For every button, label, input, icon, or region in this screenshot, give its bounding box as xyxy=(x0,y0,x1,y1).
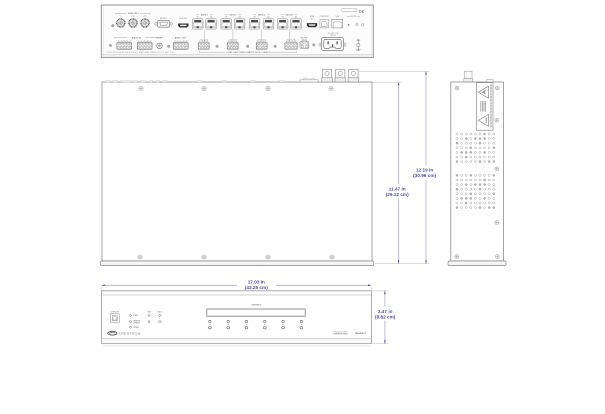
svg-text:HDMI IN 1: HDMI IN 1 xyxy=(179,18,187,20)
svg-text:OUT: OUT xyxy=(310,18,314,20)
svg-text:RS-232 G: RS-232 G xyxy=(160,18,168,20)
svg-text:CRESTRON: CRESTRON xyxy=(119,332,141,336)
svg-text:COMPUTER: COMPUTER xyxy=(320,16,330,18)
svg-text:RESET: RESET xyxy=(134,327,140,329)
svg-text:17.03 in: 17.03 in xyxy=(248,280,265,285)
svg-text:12.19 in: 12.19 in xyxy=(416,168,433,173)
svg-text:(8.82 cm): (8.82 cm) xyxy=(375,315,396,320)
svg-text:DM-MD8X1: DM-MD8X1 xyxy=(355,333,367,335)
svg-text:DM OUT: DM OUT xyxy=(286,14,294,16)
svg-text:DM IN 1: DM IN 1 xyxy=(201,14,208,16)
svg-text:AUDIO IN: AUDIO IN xyxy=(132,36,142,39)
svg-text:(29.12 cm): (29.12 cm) xyxy=(386,192,409,197)
svg-text:50/60 Hz: 50/60 Hz xyxy=(330,35,336,37)
svg-text:ERROR: ERROR xyxy=(134,322,141,324)
svg-text:DM IN 3: DM IN 3 xyxy=(258,14,265,16)
svg-text:(43.25 cm): (43.25 cm) xyxy=(245,285,268,290)
svg-text:11.47 in: 11.47 in xyxy=(389,187,406,192)
svg-text:SPDIF IN: SPDIF IN xyxy=(156,38,164,40)
svg-text:AUDIO OUT: AUDIO OUT xyxy=(175,36,187,39)
svg-text:3.47 in: 3.47 in xyxy=(378,309,393,314)
svg-text:OUTPUTS: OUTPUTS xyxy=(251,304,261,306)
svg-text:C€: C€ xyxy=(359,9,365,14)
svg-text:(1SSUS.CE): (1SSUS.CE) xyxy=(334,333,347,335)
svg-text:VIDEO IN 1: VIDEO IN 1 xyxy=(128,13,140,15)
svg-text:DM IN 2: DM IN 2 xyxy=(229,14,236,16)
svg-text:(30.96 cm): (30.96 cm) xyxy=(413,173,436,178)
svg-text:SETUP: SETUP xyxy=(351,16,356,18)
